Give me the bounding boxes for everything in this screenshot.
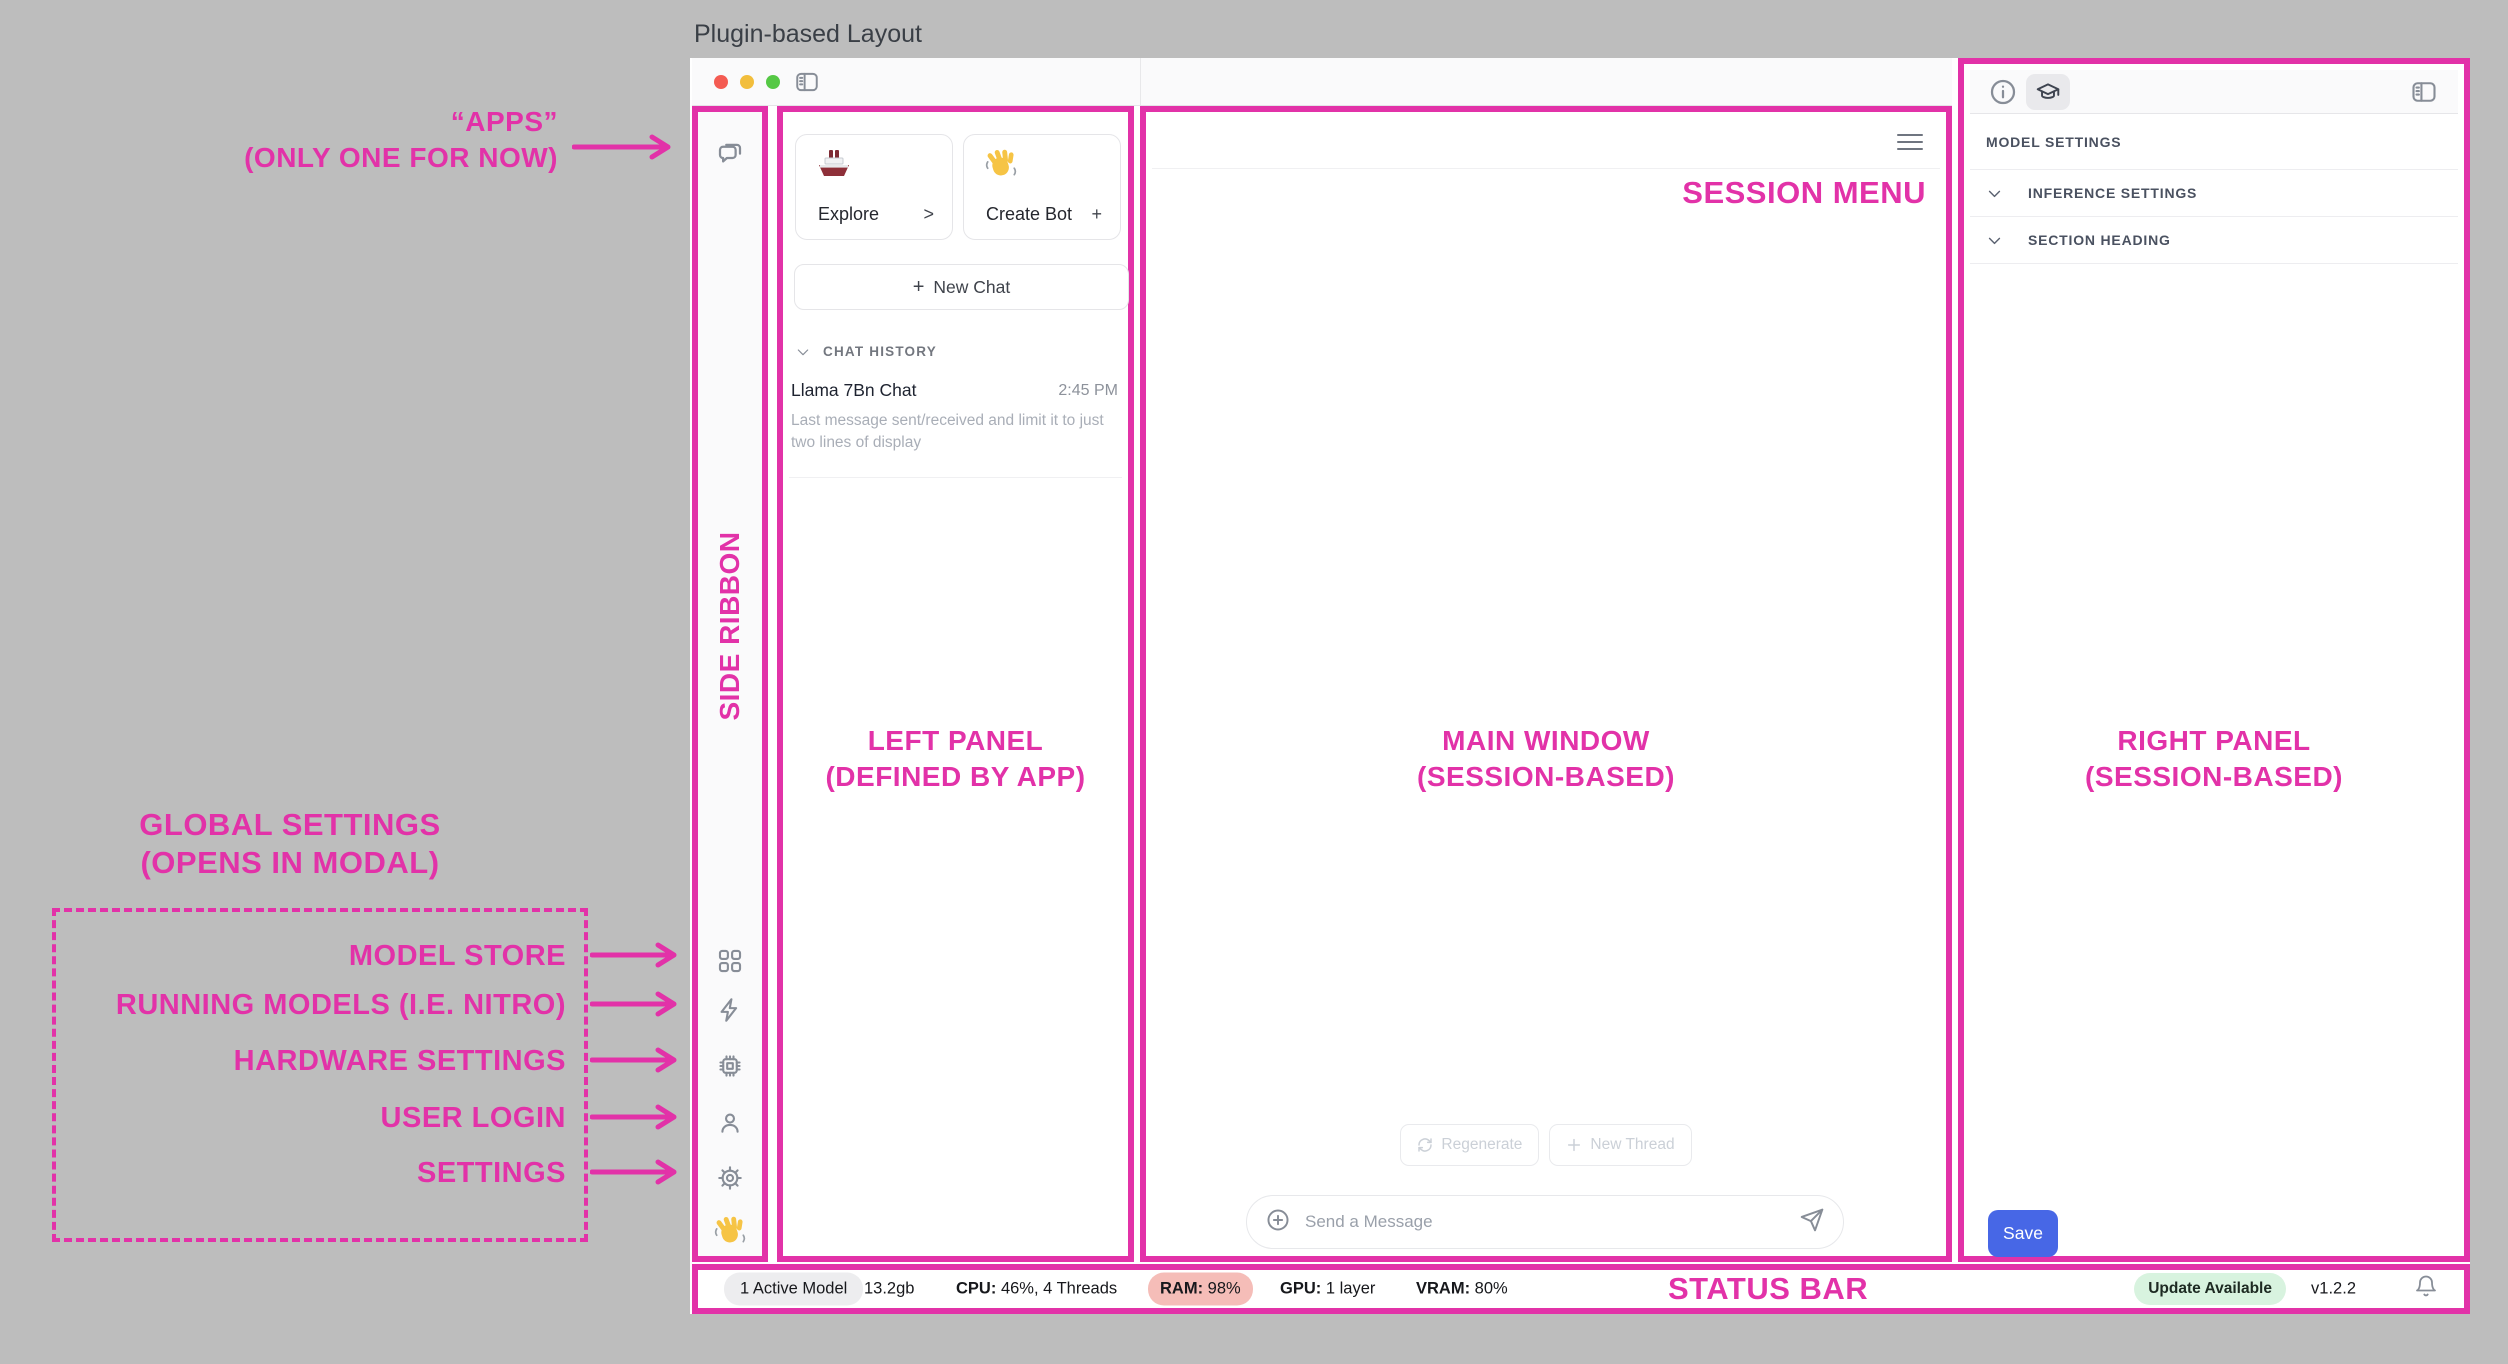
new-thread-button[interactable]: New Thread — [1549, 1124, 1691, 1166]
chip-icon — [716, 1052, 744, 1080]
chat-item-title: Llama 7Bn Chat — [791, 380, 917, 401]
global-settings-annotation: GLOBAL SETTINGS (OPENS IN MODAL) — [120, 806, 460, 882]
right-panel-header — [1970, 70, 2458, 114]
regenerate-button[interactable]: Regenerate — [1400, 1124, 1539, 1166]
toggle-left-panel-icon[interactable] — [794, 69, 820, 100]
chat-history-header[interactable]: CHAT HISTORY — [783, 338, 1128, 366]
inference-settings-label: INFERENCE SETTINGS — [2028, 185, 2197, 201]
message-input[interactable] — [1305, 1212, 1785, 1232]
running-models-annotation: RUNNING MODELS (I.E. NITRO) — [116, 988, 566, 1022]
chevron-down-icon[interactable] — [1986, 185, 2003, 207]
graduation-cap-icon — [2035, 79, 2061, 105]
model-settings-tab[interactable] — [2026, 74, 2070, 110]
session-menu-annotation: SESSION MENU — [1682, 174, 1926, 212]
explore-card[interactable]: Explore > — [795, 134, 953, 240]
chevron-down-icon[interactable] — [1986, 232, 2003, 254]
cpu-value: 46%, 4 Threads — [1001, 1280, 1117, 1298]
traffic-light-close[interactable] — [714, 75, 728, 89]
side-ribbon-annotation: SIDE RIBBON — [712, 531, 748, 720]
explore-card-label: Explore — [818, 204, 879, 225]
model-store-arrow — [590, 942, 682, 968]
bell-icon — [2414, 1275, 2438, 1299]
running-models-button[interactable] — [716, 996, 744, 1029]
session-menu-button[interactable] — [1896, 132, 1924, 157]
traffic-light-zoom[interactable] — [766, 75, 780, 89]
save-button[interactable]: Save — [1988, 1210, 2058, 1257]
chevron-down-icon[interactable] — [795, 344, 811, 365]
annotation-line: GLOBAL SETTINGS — [120, 806, 460, 844]
plus-icon: + — [913, 276, 925, 299]
section-heading-label: SECTION HEADING — [2028, 232, 2171, 248]
plus-icon — [1566, 1137, 1582, 1153]
main-window: SESSION MENU MAIN WINDOW (SESSION-BASED)… — [1140, 106, 1952, 1262]
toolbar-divider — [1140, 58, 1141, 105]
model-store-annotation: MODEL STORE — [349, 939, 566, 973]
hardware-settings-annotation: HARDWARE SETTINGS — [234, 1044, 566, 1078]
ram-usage-badge: RAM: 98% — [1148, 1273, 1253, 1306]
new-chat-button[interactable]: + New Chat — [794, 264, 1129, 310]
create-bot-card-plus: + — [1091, 204, 1102, 225]
main-top-divider — [1152, 168, 1940, 169]
vram-usage: VRAM: 80% — [1416, 1280, 1508, 1299]
user-login-arrow — [590, 1104, 682, 1130]
circle-plus-icon — [1265, 1207, 1291, 1233]
settings-annotation: SETTINGS — [417, 1156, 566, 1190]
status-bar-annotation: STATUS BAR — [1668, 1270, 1868, 1308]
design-canvas: Plugin-based Layout SIDE RIBBON — [0, 0, 2508, 1364]
version-label: v1.2.2 — [2311, 1280, 2356, 1299]
thread-actions: Regenerate New Thread — [1146, 1124, 1946, 1166]
annotation-line: (DEFINED BY APP) — [783, 759, 1128, 795]
chat-list-item[interactable]: Llama 7Bn Chat 2:45 PM Last message sent… — [783, 374, 1128, 478]
toggle-right-panel-icon[interactable] — [2410, 78, 2438, 111]
send-icon — [1799, 1207, 1825, 1233]
right-panel-annotation: RIGHT PANEL (SESSION-BASED) — [1964, 723, 2464, 795]
settings-arrow — [590, 1159, 682, 1185]
hardware-settings-arrow — [590, 1047, 682, 1073]
gear-icon — [716, 1164, 744, 1192]
annotation-line: MAIN WINDOW — [1146, 723, 1946, 759]
annotation-line: “APPS” — [244, 104, 558, 140]
info-icon — [1988, 77, 2018, 107]
chat-app-button[interactable] — [715, 138, 745, 173]
gpu-usage: GPU: 1 layer — [1280, 1280, 1375, 1299]
annotation-line: LEFT PANEL — [783, 723, 1128, 759]
model-settings-heading: MODEL SETTINGS — [1986, 134, 2121, 150]
model-store-button[interactable] — [716, 947, 744, 980]
traffic-light-minimize[interactable] — [740, 75, 754, 89]
create-bot-card-label: Create Bot — [986, 204, 1072, 225]
page-title: Plugin-based Layout — [694, 20, 922, 49]
left-panel: Explore > Create Bot + + New Chat CHAT H… — [777, 106, 1134, 1262]
annotation-line: (SESSION-BASED) — [1146, 759, 1946, 795]
hardware-settings-button[interactable] — [716, 1052, 744, 1085]
running-models-arrow — [590, 991, 682, 1017]
ship-emoji — [816, 147, 852, 188]
chat-item-preview: Last message sent/received and limit it … — [791, 410, 1113, 453]
refresh-icon — [1417, 1137, 1433, 1153]
waving-hand-emoji[interactable] — [713, 1214, 747, 1253]
memory-usage: 13.2gb — [864, 1280, 914, 1299]
send-button[interactable] — [1799, 1207, 1825, 1238]
gpu-value: 1 layer — [1326, 1280, 1376, 1298]
new-thread-label: New Thread — [1590, 1136, 1674, 1154]
regenerate-label: Regenerate — [1441, 1136, 1522, 1154]
main-window-annotation: MAIN WINDOW (SESSION-BASED) — [1146, 723, 1946, 795]
cpu-label: CPU: — [956, 1280, 996, 1298]
vram-value: 80% — [1475, 1280, 1508, 1298]
attach-button[interactable] — [1265, 1207, 1291, 1238]
right-panel: MODEL SETTINGS INFERENCE SETTINGS SECTIO… — [1958, 58, 2470, 1262]
bolt-icon — [716, 996, 744, 1024]
chat-history-label: CHAT HISTORY — [823, 344, 937, 359]
left-panel-annotation: LEFT PANEL (DEFINED BY APP) — [783, 723, 1128, 795]
notifications-button[interactable] — [2414, 1275, 2438, 1304]
vram-label: VRAM: — [1416, 1280, 1470, 1298]
inference-settings-row[interactable]: INFERENCE SETTINGS — [1970, 170, 2458, 217]
apps-annotation: “APPS” (ONLY ONE FOR NOW) — [244, 104, 558, 176]
chat-item-time: 2:45 PM — [1058, 382, 1118, 400]
annotation-line: (OPENS IN MODAL) — [120, 844, 460, 882]
cpu-usage: CPU: 46%, 4 Threads — [956, 1280, 1117, 1299]
explore-card-chevron: > — [923, 204, 934, 225]
user-login-annotation: USER LOGIN — [381, 1101, 566, 1135]
section-heading-row[interactable]: SECTION HEADING — [1970, 217, 2458, 264]
message-composer — [1246, 1195, 1844, 1249]
ram-value: 98% — [1208, 1280, 1241, 1298]
window-toolbar — [692, 58, 1952, 106]
user-login-button[interactable] — [716, 1109, 744, 1142]
chat-bubbles-icon — [715, 138, 745, 168]
new-chat-label: New Chat — [933, 277, 1010, 298]
side-ribbon: SIDE RIBBON — [692, 106, 768, 1262]
annotation-line: (SESSION-BASED) — [1964, 759, 2464, 795]
model-settings-heading-row: MODEL SETTINGS — [1970, 114, 2458, 170]
annotation-line: RIGHT PANEL — [1964, 723, 2464, 759]
ram-label: RAM: — [1160, 1280, 1203, 1298]
annotation-line: (ONLY ONE FOR NOW) — [244, 140, 558, 176]
grid-icon — [716, 947, 744, 975]
hamburger-icon — [1896, 132, 1924, 152]
settings-button[interactable] — [716, 1164, 744, 1197]
user-icon — [716, 1109, 744, 1137]
waving-hand-emoji — [984, 147, 1018, 186]
apps-arrow — [572, 134, 676, 160]
update-available-badge[interactable]: Update Available — [2134, 1273, 2286, 1305]
active-model-badge: 1 Active Model — [724, 1273, 863, 1306]
status-bar: 1 Active Model 13.2gb CPU: 46%, 4 Thread… — [692, 1264, 2470, 1314]
create-bot-card[interactable]: Create Bot + — [963, 134, 1121, 240]
gpu-label: GPU: — [1280, 1280, 1321, 1298]
info-tab[interactable] — [1988, 77, 2018, 112]
list-divider — [789, 477, 1122, 478]
